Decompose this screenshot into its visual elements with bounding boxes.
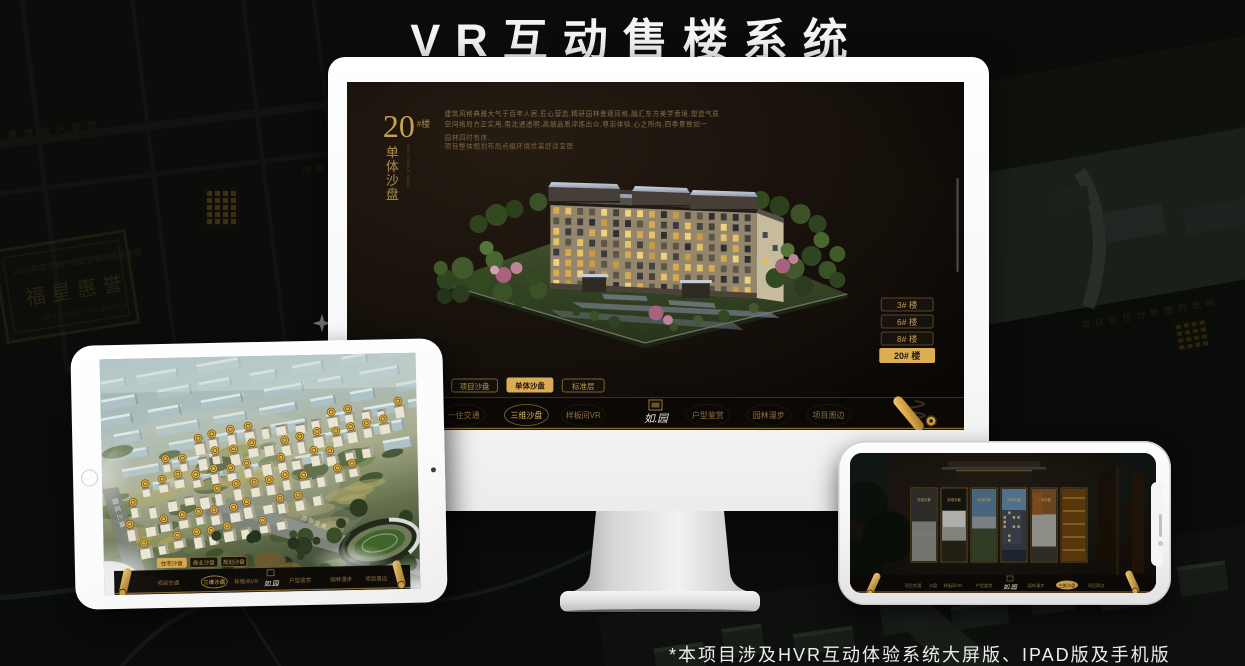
svg-text:三维沙盘: 三维沙盘 [511,410,543,420]
svg-text:三维沙盘: 三维沙盘 [1059,582,1076,589]
svg-text:8# 楼: 8# 楼 [897,334,918,344]
svg-text:20# 楼: 20# 楼 [894,350,920,361]
svg-text:户型鉴赏: 户型鉴赏 [692,410,724,420]
svg-text:样板间VR: 样板间VR [944,582,962,589]
svg-text:园林漫步: 园林漫步 [753,410,785,420]
svg-text:单体沙盘: 单体沙盘 [515,380,545,390]
svg-text:项目周边: 项目周边 [1088,582,1106,589]
svg-text:项目周边: 项目周边 [813,410,845,420]
svg-text:一住交通: 一住交通 [448,410,480,420]
svg-text:项目沙盘: 项目沙盘 [460,381,490,391]
svg-text:标准层: 标准层 [572,381,595,391]
svg-text:户型鉴赏: 户型鉴赏 [976,582,993,589]
svg-text:项目交通: 项目交通 [905,582,923,589]
svg-text:样板间VR: 样板间VR [566,410,601,420]
svg-text:3# 楼: 3# 楼 [897,300,918,310]
svg-text:6# 楼: 6# 楼 [897,317,918,327]
svg-text:如.园: 如.园 [1003,583,1018,591]
svg-text:沙盘: 沙盘 [929,582,937,588]
svg-text:园林漫步: 园林漫步 [1028,582,1045,589]
svg-text:如.园: 如.园 [264,580,280,588]
svg-text:如.园: 如.园 [644,413,669,425]
